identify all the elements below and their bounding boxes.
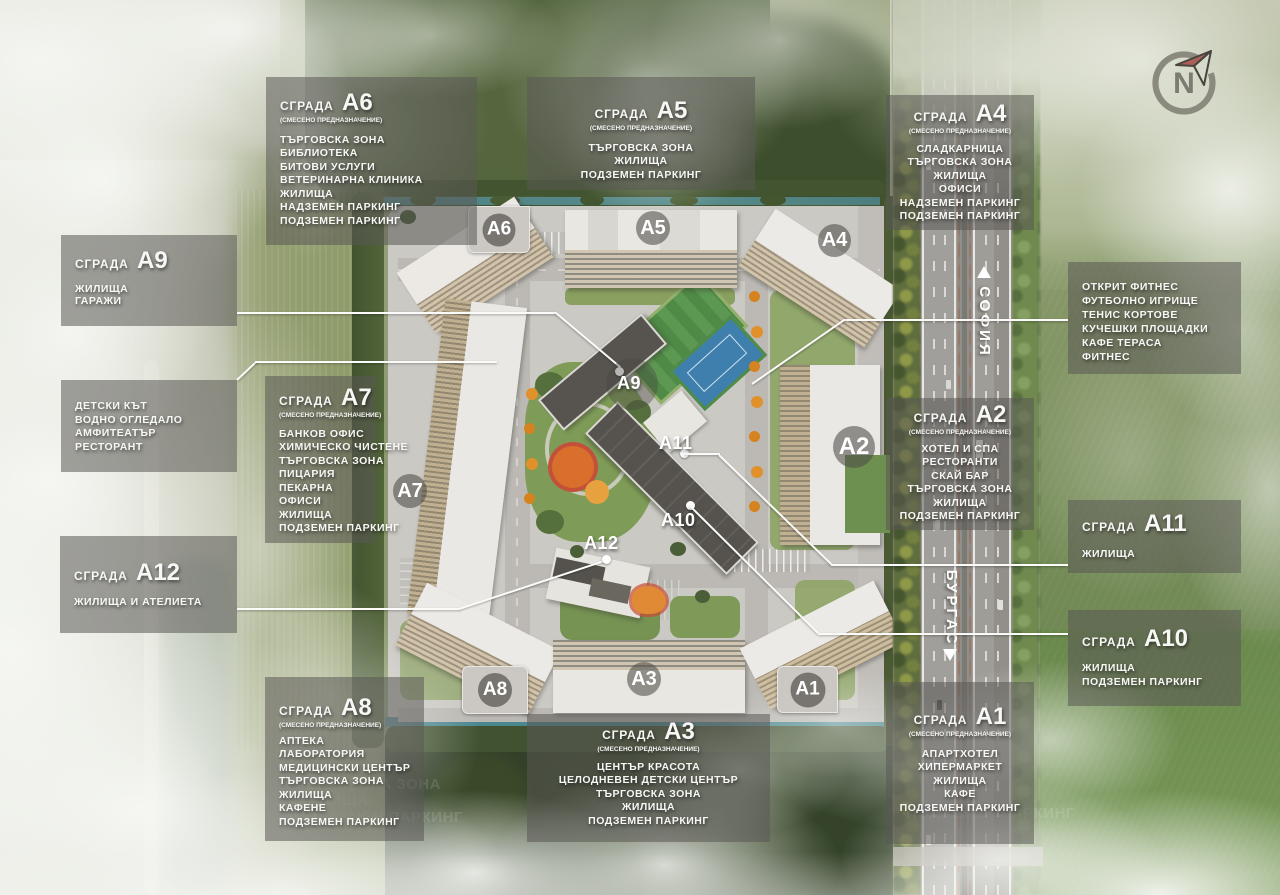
svg-text:N: N bbox=[1173, 67, 1195, 100]
